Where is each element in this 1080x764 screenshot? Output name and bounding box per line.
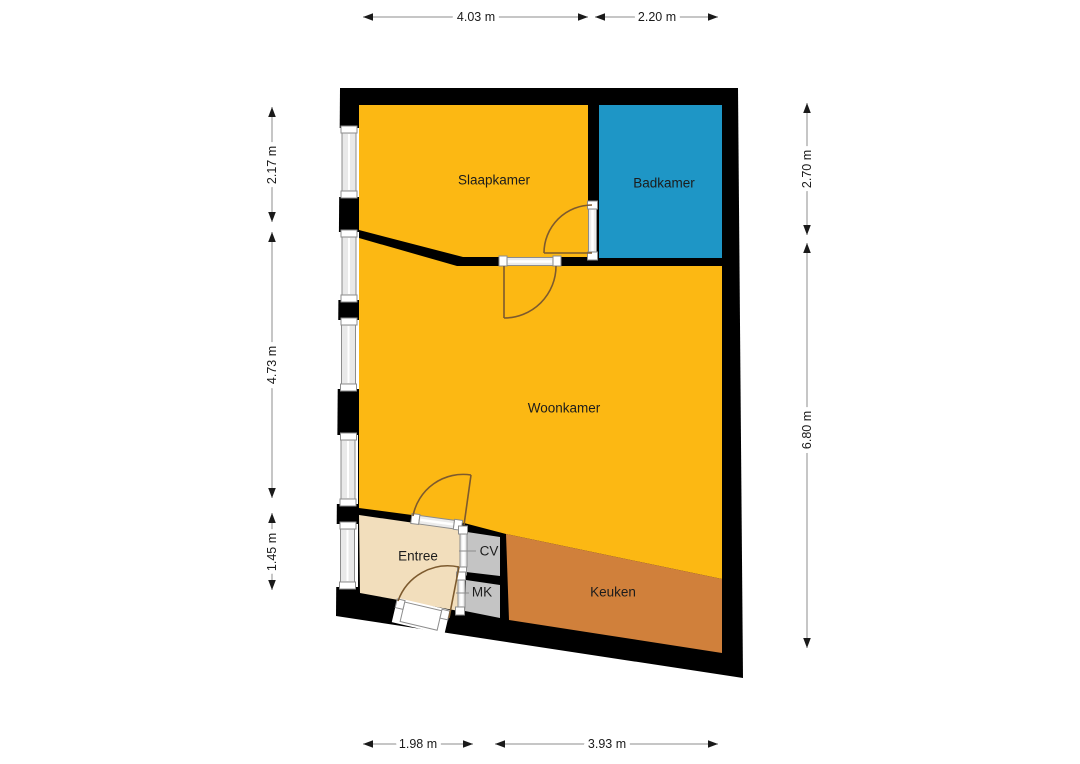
arrow-left-icon	[363, 740, 373, 748]
svg-text:1.98 m: 1.98 m	[399, 737, 437, 751]
arrow-down-icon	[268, 212, 276, 222]
svg-text:4.73 m: 4.73 m	[265, 346, 279, 384]
svg-text:6.80 m: 6.80 m	[800, 411, 814, 449]
window-3	[336, 318, 359, 391]
arrow-right-icon	[578, 13, 588, 21]
window-2	[336, 230, 359, 302]
dimension-left-2: 4.73 m	[265, 232, 279, 498]
arrow-down-icon	[803, 225, 811, 235]
arrow-right-icon	[463, 740, 473, 748]
arrow-right-icon	[708, 13, 718, 21]
arrow-up-icon	[803, 103, 811, 113]
arrow-up-icon	[803, 243, 811, 253]
dimension-top-1: 4.03 m	[363, 10, 588, 24]
arrow-down-icon	[268, 580, 276, 590]
arrow-right-icon	[708, 740, 718, 748]
arrow-left-icon	[495, 740, 505, 748]
room-label-keuken: Keuken	[590, 585, 636, 600]
arrow-up-icon	[268, 232, 276, 242]
floorplan-drawing: Slaapkamer Badkamer Woonkamer Entree CV …	[0, 0, 1080, 764]
dimension-bottom-1: 1.98 m	[363, 737, 473, 751]
dimension-top-2: 2.20 m	[595, 10, 718, 24]
arrow-left-icon	[595, 13, 605, 21]
door-opening-slaapkamer	[499, 256, 561, 266]
dimension-right-2: 6.80 m	[800, 243, 814, 648]
window-5	[335, 522, 358, 589]
room-label-mk: MK	[472, 585, 492, 600]
window-4	[335, 433, 358, 506]
svg-text:4.03 m: 4.03 m	[457, 10, 495, 24]
dimension-right-1: 2.70 m	[800, 103, 814, 235]
room-label-entree: Entree	[398, 549, 438, 564]
dimension-bottom-2: 3.93 m	[495, 737, 718, 751]
svg-text:2.20 m: 2.20 m	[638, 10, 676, 24]
dimension-left-3: 1.45 m	[265, 513, 279, 590]
floorplan-canvas: Slaapkamer Badkamer Woonkamer Entree CV …	[0, 0, 1080, 764]
room-label-cv: CV	[480, 544, 499, 559]
room-label-slaapkamer: Slaapkamer	[458, 173, 531, 188]
door-opening-badkamer	[588, 201, 598, 260]
dimension-left-1: 2.17 m	[265, 107, 279, 222]
arrow-up-icon	[268, 107, 276, 117]
arrow-down-icon	[803, 638, 811, 648]
svg-text:2.17 m: 2.17 m	[265, 146, 279, 184]
arrow-down-icon	[268, 488, 276, 498]
room-label-woonkamer: Woonkamer	[528, 401, 601, 416]
room-label-badkamer: Badkamer	[633, 176, 695, 191]
svg-text:2.70 m: 2.70 m	[800, 150, 814, 188]
arrow-left-icon	[363, 13, 373, 21]
svg-text:3.93 m: 3.93 m	[588, 737, 626, 751]
svg-text:1.45 m: 1.45 m	[265, 533, 279, 571]
arrow-up-icon	[268, 513, 276, 523]
window-1	[336, 126, 359, 198]
